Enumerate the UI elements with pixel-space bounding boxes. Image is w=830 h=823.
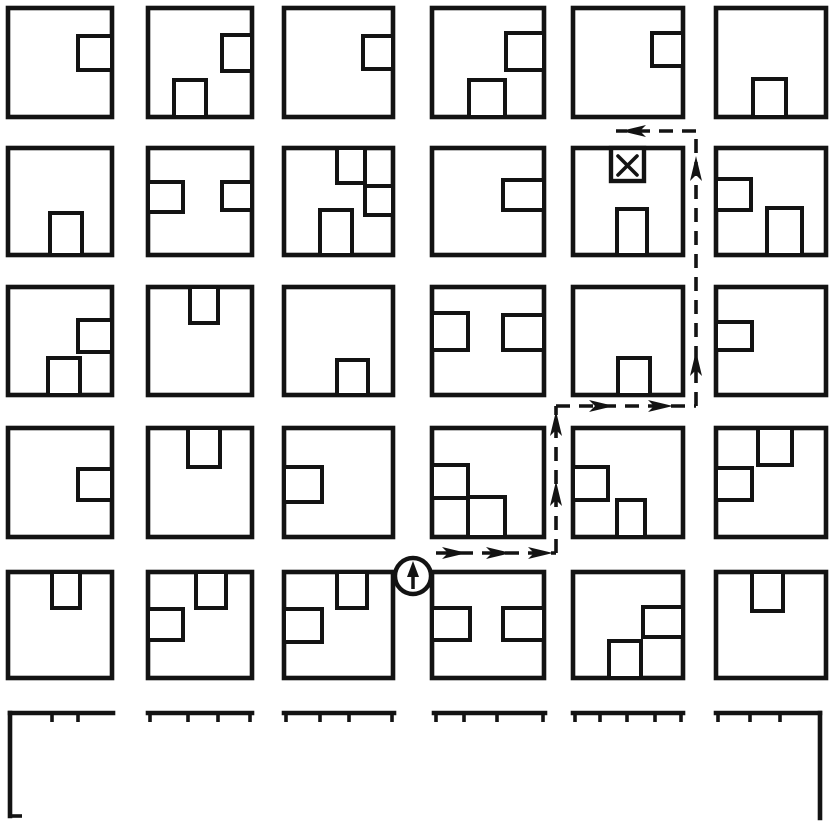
building-notch-top: [752, 572, 783, 611]
building-notch-right: [78, 469, 112, 500]
building-notch-left: [716, 322, 752, 350]
city-block-r1c0: [8, 148, 112, 255]
city-block-r4c1: [148, 572, 252, 678]
building-notch-bottom: [337, 360, 368, 395]
building-notch-right: [503, 180, 544, 210]
building-notch-top: [337, 572, 367, 608]
city-block-r2c0: [8, 287, 112, 395]
city-block-r0c2: [284, 8, 393, 117]
city-block-r0c3: [432, 8, 544, 117]
building-notch-right: [78, 320, 112, 352]
building-notch-left: [432, 313, 468, 350]
city-block-r1c5: [716, 148, 826, 255]
building-notch-top: [758, 428, 792, 465]
building-notch-right: [503, 608, 544, 640]
building-notch-left: [432, 608, 470, 640]
destination-marker: [611, 148, 644, 181]
city-block-r3c4: [573, 428, 683, 537]
building-notch-right: [643, 607, 683, 637]
building-notch-right: [506, 33, 544, 70]
city-block-r3c1: [148, 428, 252, 537]
city-block-r1c2: [284, 148, 393, 255]
building-notch-left: [716, 468, 752, 500]
building-notch-left: [284, 467, 322, 502]
building-notch-bottom: [320, 210, 352, 255]
city-grid-route-svg: [0, 0, 830, 823]
building-notch-right: [222, 182, 252, 210]
building-notch-right: [222, 35, 252, 71]
city-block-r1c1: [148, 148, 252, 255]
city-block-r2c3: [432, 287, 544, 395]
building-notch-left: [573, 467, 608, 500]
start-marker: [395, 558, 431, 594]
building-notch-left: [432, 465, 468, 498]
city-block-r2c4: [573, 287, 683, 395]
map-background: [0, 0, 830, 823]
city-block-r4c5: [716, 572, 826, 678]
building-notch-bottom: [617, 500, 645, 537]
building-notch-right: [503, 315, 544, 350]
building-notch-bottom: [767, 208, 802, 255]
building-notch-left: [148, 182, 183, 212]
building-notch-bottom: [48, 358, 80, 395]
city-block-r2c1: [148, 287, 252, 395]
building-notch-top: [52, 572, 80, 608]
city-block-r1c3: [432, 148, 544, 255]
building-notch-bottom: [469, 80, 505, 117]
building-notch-left: [284, 609, 322, 642]
building-notch-top: [196, 572, 226, 608]
building-notch-bottom: [753, 79, 786, 117]
building-notch-bottom: [468, 497, 505, 537]
city-block-r2c5: [716, 287, 826, 395]
city-block-r3c0: [8, 428, 112, 537]
city-block-r3c5: [716, 428, 826, 537]
city-block-r3c3: [432, 428, 544, 537]
building-notch-bottom: [609, 641, 641, 678]
city-block-r4c4: [573, 572, 683, 678]
route-map-figure: [0, 0, 830, 823]
city-block-r0c4: [573, 8, 683, 117]
city-block-r0c5: [716, 8, 826, 117]
building-notch-bottom: [50, 213, 82, 255]
building-notch-right: [363, 36, 393, 69]
city-block-r4c0: [8, 572, 112, 678]
city-block-r3c2: [284, 428, 393, 537]
building-notch-top: [190, 287, 218, 323]
building-notch-left: [716, 179, 751, 210]
city-block-r2c2: [284, 287, 393, 395]
building-notch-top: [188, 428, 220, 467]
building-notch-top: [337, 148, 365, 183]
city-block-r4c2: [284, 572, 393, 678]
building-notch-left: [148, 609, 183, 640]
building-notch-right: [365, 186, 393, 215]
building-notch-bottom: [618, 358, 650, 395]
city-block-r0c1: [148, 8, 252, 117]
building-notch-bottom: [617, 209, 647, 255]
city-block-r0c0: [8, 8, 112, 117]
building-notch-right: [78, 36, 112, 70]
city-block-r4c3: [432, 572, 544, 678]
building-notch-bottom: [174, 80, 206, 117]
building-notch-right: [652, 33, 683, 66]
